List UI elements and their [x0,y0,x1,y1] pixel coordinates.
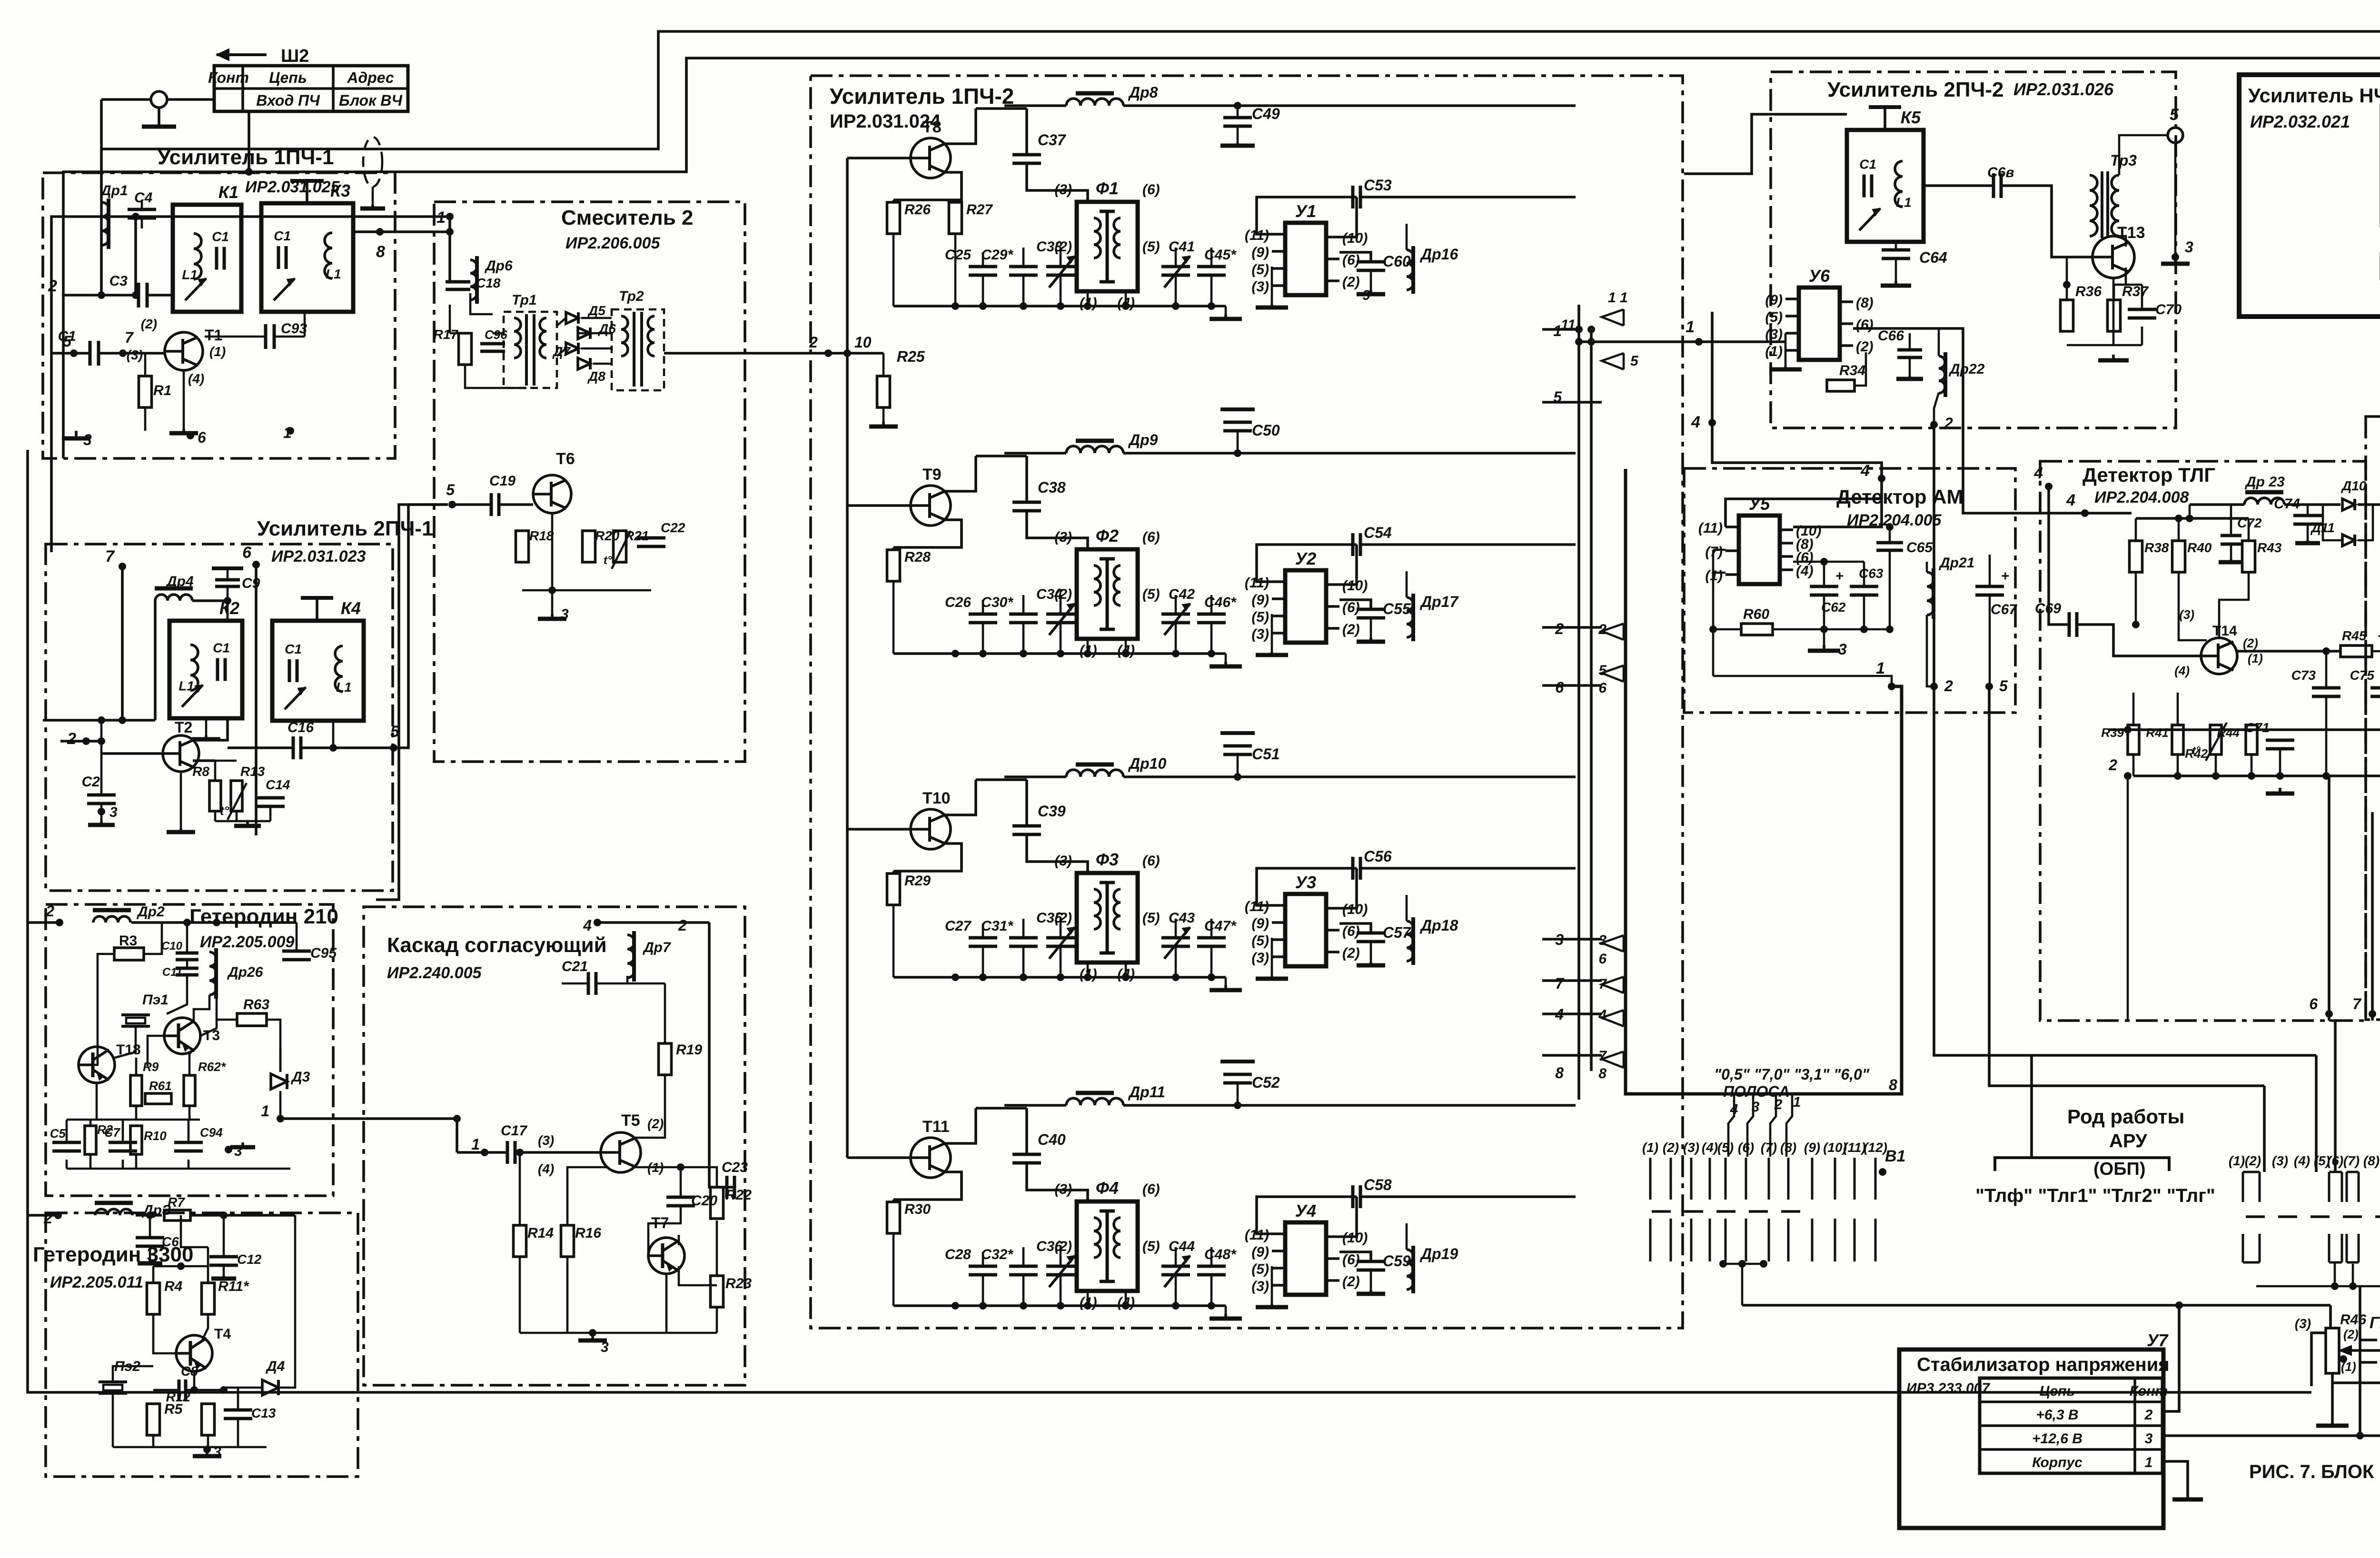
svg-text:R34: R34 [1839,363,1865,378]
svg-text:У6: У6 [1809,266,1830,286]
svg-text:Т9: Т9 [922,466,942,484]
svg-text:(4): (4) [538,1161,554,1176]
svg-text:3: 3 [601,1340,609,1355]
svg-text:C25: C25 [945,247,972,263]
svg-text:C65: C65 [1906,540,1933,556]
svg-text:L1: L1 [336,680,352,695]
svg-text:R46: R46 [2340,1312,2366,1328]
svg-text:C1: C1 [285,642,302,656]
svg-text:Др6: Др6 [484,258,513,274]
svg-text:ИР2.032.021: ИР2.032.021 [2250,112,2350,131]
svg-text:t°: t° [220,804,229,818]
svg-text:C95: C95 [310,945,337,961]
svg-text:(6): (6) [1142,1181,1160,1197]
svg-text:C56: C56 [1364,848,1392,865]
svg-text:3: 3 [2145,1431,2153,1447]
svg-text:(9): (9) [1251,592,1269,608]
svg-text:Др 23: Др 23 [2244,474,2285,490]
svg-text:R22: R22 [725,1187,752,1203]
svg-text:+: + [2378,629,2380,643]
svg-text:Смеситель 2: Смеситель 2 [561,206,693,229]
svg-text:C57: C57 [1383,924,1412,941]
svg-text:C7: C7 [104,1125,121,1140]
svg-text:Ф4: Ф4 [1096,1178,1119,1198]
svg-text:3: 3 [2185,238,2193,256]
svg-text:6: 6 [1555,679,1564,696]
svg-text:Др1: Др1 [99,183,128,198]
svg-text:C67: C67 [1991,602,2017,617]
svg-text:C16: C16 [288,720,314,735]
svg-text:Тр2: Тр2 [619,288,644,304]
svg-text:R30: R30 [904,1201,931,1217]
svg-text:Д5: Д5 [587,303,605,318]
svg-text:2: 2 [43,1210,52,1227]
svg-text:C1: C1 [212,229,229,244]
svg-text:(11): (11) [1698,520,1723,536]
svg-text:(3): (3) [538,1133,554,1148]
svg-text:C94: C94 [200,1125,223,1140]
svg-text:(6): (6) [1142,529,1160,545]
svg-text:4: 4 [1730,1102,1738,1117]
svg-text:Т8: Т8 [922,118,942,136]
svg-text:Ф2: Ф2 [1096,526,1119,546]
svg-text:РИС. 7. БЛОК ПЧ. Схема электри: РИС. 7. БЛОК ПЧ. Схема электрическая при… [2249,1461,2380,1482]
svg-text:8: 8 [1889,1076,1897,1093]
svg-text:2: 2 [1774,1097,1783,1112]
svg-text:8: 8 [1598,1066,1606,1082]
svg-text:C58: C58 [1364,1176,1392,1193]
svg-text:C14: C14 [266,777,290,792]
svg-text:R17: R17 [434,327,459,342]
svg-text:В1: В1 [1885,1147,1905,1165]
svg-text:(6): (6) [1856,317,1874,333]
svg-text:C64: C64 [1919,249,1947,266]
svg-text:1: 1 [471,1136,480,1153]
svg-text:Ф1: Ф1 [1096,179,1119,198]
svg-text:Адрес: Адрес [347,69,394,86]
svg-text:R13: R13 [240,764,265,779]
svg-text:R45: R45 [2342,628,2367,643]
svg-text:(2): (2) [1342,622,1360,637]
svg-text:Род работы: Род работы [2067,1105,2184,1128]
svg-text:Др19: Др19 [1419,1245,1458,1262]
svg-text:C47*: C47* [1204,918,1237,934]
svg-text:Корпус: Корпус [2032,1455,2082,1470]
svg-text:7: 7 [105,547,115,566]
svg-text:6: 6 [198,429,206,446]
svg-text:(9): (9) [1804,1140,1820,1155]
svg-text:C9: C9 [242,576,260,591]
svg-text:(5): (5) [1251,1261,1269,1277]
svg-text:9: 9 [1362,288,1370,303]
svg-text:Ш2: Ш2 [281,46,309,66]
svg-text:C69: C69 [2035,601,2061,616]
svg-text:(5): (5) [1142,1239,1160,1254]
svg-text:2: 2 [2144,1407,2153,1423]
svg-text:+: + [2001,568,2010,584]
svg-text:L1: L1 [1896,195,1912,210]
svg-text:(3): (3) [2179,607,2194,622]
svg-text:Др9: Др9 [1128,431,1158,448]
svg-text:(5): (5) [1251,933,1269,949]
svg-text:Др4: Др4 [165,574,194,589]
svg-text:(1): (1) [1765,344,1783,359]
svg-text:2: 2 [2108,756,2117,774]
svg-text:К4: К4 [341,598,361,618]
svg-text:(5): (5) [1142,586,1160,602]
svg-text:Конт: Конт [208,69,249,86]
svg-text:4: 4 [1691,413,1700,431]
svg-text:Др22: Др22 [1948,361,1985,377]
svg-text:R11*: R11* [218,1279,249,1294]
svg-text:C5: C5 [50,1126,66,1141]
svg-text:У5: У5 [1749,494,1770,514]
svg-text:C6в: C6в [1987,165,2014,180]
svg-text:Стабилизатор напряжения: Стабилизатор напряжения [1917,1354,2170,1375]
svg-text:t°: t° [2192,744,2201,757]
svg-text:(4): (4) [2174,664,2190,678]
svg-text:7: 7 [1598,976,1607,992]
svg-text:R40: R40 [2187,540,2212,555]
svg-text:(5): (5) [1251,609,1269,625]
svg-text:1: 1 [1686,318,1695,336]
svg-text:Т7: Т7 [651,1214,669,1231]
svg-text:Блок ВЧ: Блок ВЧ [339,92,403,109]
svg-text:C46*: C46* [1204,595,1237,610]
svg-text:(6): (6) [1142,182,1160,198]
svg-text:Т5: Т5 [621,1111,640,1130]
svg-text:C30*: C30* [981,595,1013,610]
svg-text:C75: C75 [2350,668,2375,683]
svg-text:Др7: Др7 [642,940,671,955]
svg-text:Др10: Др10 [1128,755,1166,772]
svg-text:2: 2 [1944,415,1953,432]
svg-text:R44: R44 [2217,725,2240,740]
svg-text:У1: У1 [1295,201,1316,221]
svg-text:Тр3: Тр3 [2110,152,2137,169]
svg-text:L1: L1 [182,268,198,282]
svg-text:8: 8 [1555,1064,1564,1082]
svg-text:C50: C50 [1252,422,1280,439]
svg-text:C72: C72 [2237,516,2262,530]
svg-text:C70: C70 [2155,302,2182,318]
svg-text:R37: R37 [2122,284,2149,299]
svg-text:Д4: Д4 [265,1359,285,1374]
svg-text:R41: R41 [2146,725,2169,740]
svg-text:4: 4 [2033,464,2043,482]
svg-text:Усилитель 1ПЧ-1: Усилитель 1ПЧ-1 [158,146,334,169]
svg-text:C32*: C32* [981,1247,1013,1262]
svg-text:C40: C40 [1038,1131,1066,1148]
svg-text:ИР2.240.005: ИР2.240.005 [387,964,482,982]
svg-text:(8): (8) [2363,1153,2380,1168]
svg-text:C6: C6 [162,1234,179,1249]
svg-text:Тр1: Тр1 [512,292,537,308]
svg-text:Др26: Др26 [227,964,263,980]
svg-text:t°: t° [604,554,612,567]
svg-text:R25: R25 [897,348,925,365]
svg-text:Т13: Т13 [2117,224,2145,242]
svg-text:(3): (3) [2272,1153,2288,1168]
svg-text:C44: C44 [1169,1239,1195,1254]
svg-text:1: 1 [261,1102,269,1120]
svg-text:C12: C12 [237,1252,262,1267]
svg-text:C41: C41 [1169,239,1195,255]
svg-text:2: 2 [67,730,76,748]
svg-text:R3: R3 [119,933,137,949]
svg-text:Др8: Др8 [1128,84,1158,101]
svg-text:Детектор ТЛГ: Детектор ТЛГ [2082,464,2215,486]
svg-text:(5): (5) [1142,239,1160,255]
svg-text:2: 2 [1598,622,1606,637]
svg-text:C39: C39 [1038,803,1066,820]
svg-text:1: 1 [1793,1094,1801,1110]
svg-text:(6): (6) [1142,853,1160,869]
svg-text:У3: У3 [1295,873,1316,892]
svg-text:Т10: Т10 [922,789,951,807]
svg-text:3: 3 [109,804,118,820]
svg-text:5: 5 [2170,106,2179,124]
svg-text:С18: С18 [476,276,501,290]
svg-text:C22: C22 [661,520,685,535]
svg-text:R28: R28 [904,549,931,565]
svg-text:(9): (9) [1765,292,1783,308]
svg-text:(8): (8) [1856,295,1874,311]
svg-text:C4: C4 [134,190,153,206]
svg-text:(3): (3) [1251,279,1269,295]
svg-text:(3): (3) [1251,950,1269,966]
svg-text:Пэ1: Пэ1 [142,992,169,1008]
svg-text:R23: R23 [725,1276,752,1291]
svg-text:Др21: Др21 [1938,555,1974,571]
svg-text:R36: R36 [2075,284,2102,299]
svg-text:Др18: Др18 [1419,917,1458,934]
svg-text:C29*: C29* [981,247,1013,263]
svg-text:1: 1 [1876,659,1885,677]
svg-text:У2: У2 [1295,549,1316,568]
svg-text:C54: C54 [1364,524,1392,541]
svg-text:6: 6 [1598,951,1606,967]
svg-text:(5): (5) [1765,309,1783,325]
svg-text:R26: R26 [904,202,931,218]
svg-text:(3): (3) [1054,853,1072,869]
svg-text:Др11: Др11 [1128,1083,1165,1101]
svg-text:5: 5 [1630,353,1639,369]
svg-text:C73: C73 [2291,668,2316,683]
svg-text:(2): (2) [1054,910,1072,926]
svg-text:Д3: Д3 [290,1069,310,1085]
svg-text:C20: C20 [691,1193,717,1209]
svg-text:8: 8 [376,243,385,261]
svg-text:(2): (2) [1342,1274,1360,1290]
svg-text:Т1: Т1 [205,327,222,344]
svg-text:C51: C51 [1252,745,1280,763]
svg-text:C59: C59 [1383,1252,1411,1270]
svg-text:(3): (3) [127,347,143,362]
svg-text:C63: C63 [1859,566,1884,581]
svg-text:C23: C23 [722,1160,748,1175]
svg-text:C1: C1 [1859,157,1876,172]
svg-text:(2): (2) [1342,274,1360,290]
svg-text:Детектор АМ: Детектор АМ [1836,486,1963,508]
svg-text:ИР2.031.023: ИР2.031.023 [271,547,366,566]
svg-text:5: 5 [446,481,455,498]
svg-text:Д10: Д10 [2341,478,2367,493]
svg-text:У7: У7 [2147,1330,2169,1350]
svg-text:(4): (4) [1796,563,1814,579]
svg-text:(5): (5) [1251,262,1269,278]
svg-text:C45*: C45* [1204,247,1237,263]
svg-text:R9: R9 [143,1060,159,1074]
svg-text:(6): (6) [1738,1140,1754,1155]
svg-text:R39: R39 [2101,725,2124,740]
svg-text:(1): (1) [2248,651,2263,665]
svg-text:(3): (3) [1683,1140,1699,1155]
svg-text:"0,5" "7,0" "3,1" "6,0": "0,5" "7,0" "3,1" "6,0" [1714,1066,1870,1083]
svg-text:C19: C19 [489,473,516,489]
svg-text:7: 7 [1555,975,1565,992]
svg-text:К1: К1 [218,182,238,202]
svg-text:R7: R7 [168,1195,185,1210]
svg-text:R14: R14 [527,1225,554,1241]
svg-text:R4: R4 [164,1279,183,1294]
svg-text:(2): (2) [2243,636,2258,650]
svg-text:Гетеродин 210: Гетеродин 210 [189,905,338,928]
svg-text:3: 3 [1838,641,1847,658]
svg-text:Ф3: Ф3 [1096,850,1119,869]
svg-text:(1): (1) [2341,1360,2356,1374]
svg-text:Д8: Д8 [587,369,605,384]
svg-text:+6,3 В: +6,3 В [2036,1407,2078,1423]
svg-text:(4): (4) [2294,1153,2310,1168]
svg-text:Т18: Т18 [116,1042,141,1058]
svg-text:К5: К5 [1901,108,1921,127]
svg-text:АРУ: АРУ [2109,1131,2148,1151]
svg-text:(3): (3) [1054,1181,1072,1197]
svg-text:(2): (2) [1054,586,1072,602]
svg-text:(5): (5) [1717,1140,1734,1155]
svg-text:C31*: C31* [981,918,1013,934]
svg-text:C10: C10 [161,940,183,953]
svg-text:C55: C55 [1383,600,1411,617]
svg-text:(4): (4) [1702,1140,1718,1155]
svg-text:C52: C52 [1252,1074,1280,1091]
svg-text:(1): (1) [2229,1153,2245,1168]
svg-text:(9): (9) [1251,1244,1269,1260]
svg-text:Усилитель 2ПЧ-1: Усилитель 2ПЧ-1 [257,517,434,540]
svg-text:R38: R38 [2144,540,2169,555]
svg-text:C8: C8 [181,1364,198,1379]
svg-text:C3: C3 [109,273,128,289]
svg-text:(2): (2) [1663,1140,1679,1155]
svg-text:C66: C66 [1878,328,1904,344]
svg-text:R8: R8 [192,764,209,779]
svg-text:ИР3.233.007: ИР3.233.007 [1906,1380,1990,1396]
svg-text:2: 2 [45,903,54,920]
svg-text:Т11: Т11 [922,1118,950,1136]
svg-text:(4): (4) [188,371,204,386]
svg-text:Др2: Др2 [136,904,165,920]
svg-text:+: + [1835,568,1844,584]
svg-text:(ОБП): (ОБП) [2093,1159,2146,1179]
svg-text:(9): (9) [1251,245,1269,260]
svg-text:(2): (2) [1856,339,1874,355]
svg-text:2: 2 [48,277,57,295]
svg-text:7: 7 [125,329,134,346]
svg-text:4: 4 [2066,491,2075,509]
svg-text:(2): (2) [2245,1153,2261,1168]
svg-text:Т4: Т4 [214,1326,231,1342]
svg-text:R19: R19 [676,1042,702,1058]
svg-text:(2): (2) [1342,945,1360,961]
svg-text:2: 2 [1944,677,1953,695]
svg-text:4: 4 [583,917,592,934]
svg-text:1 1: 1 1 [1608,290,1628,306]
svg-text:(3): (3) [1765,327,1783,342]
svg-text:C60: C60 [1383,253,1411,270]
svg-text:R18: R18 [529,528,554,543]
svg-text:L1: L1 [178,679,194,694]
svg-text:R10: R10 [144,1129,167,1143]
svg-text:ИР2.031.026: ИР2.031.026 [2013,79,2114,99]
svg-text:К3: К3 [330,181,350,200]
svg-text:R43: R43 [2257,540,2282,555]
svg-text:(2): (2) [1054,1239,1072,1254]
svg-text:2: 2 [678,917,687,934]
svg-text:(2): (2) [2343,1327,2359,1341]
svg-text:R16: R16 [575,1225,601,1241]
svg-text:(2): (2) [647,1116,664,1131]
svg-text:Усилитель НЧ: Усилитель НЧ [2248,84,2380,107]
svg-text:C13: C13 [251,1406,276,1420]
svg-text:C49: C49 [1252,105,1280,122]
svg-text:(3): (3) [1251,1279,1269,1294]
svg-text:Каскад согласующий: Каскад согласующий [387,933,607,957]
svg-text:4: 4 [1860,462,1870,480]
svg-text:6: 6 [1598,680,1606,696]
svg-text:R27: R27 [966,202,993,218]
svg-text:2: 2 [1555,620,1564,637]
svg-text:C28: C28 [945,1247,971,1262]
svg-text:ИР2.206.005: ИР2.206.005 [565,234,660,252]
svg-text:(8): (8) [1780,1140,1796,1155]
svg-text:C93: C93 [281,321,307,337]
svg-text:C48*: C48* [1204,1247,1237,1262]
svg-text:C27: C27 [945,918,972,934]
svg-text:R60: R60 [1743,606,1769,622]
svg-text:C1: C1 [213,641,230,655]
svg-text:(7): (7) [2343,1153,2360,1168]
svg-text:6: 6 [242,544,252,562]
svg-text:R29: R29 [904,873,931,889]
svg-text:(11): (11) [1843,1140,1866,1155]
svg-text:К2: К2 [219,598,239,618]
svg-text:7: 7 [2352,995,2362,1012]
svg-text:Цепь: Цепь [269,69,307,86]
svg-text:(7): (7) [1761,1140,1777,1155]
svg-text:R1: R1 [153,383,171,398]
svg-text:(2): (2) [141,317,157,331]
svg-text:(3): (3) [2295,1316,2311,1331]
svg-text:C26: C26 [945,595,971,610]
svg-text:(12): (12) [1864,1140,1887,1155]
svg-text:C53: C53 [1364,177,1392,194]
svg-text:C71: C71 [2245,720,2270,735]
svg-text:(1): (1) [209,344,226,359]
svg-text:C11: C11 [162,966,182,979]
svg-text:(2): (2) [1054,239,1072,255]
svg-text:Усилитель 2ПЧ-2: Усилитель 2ПЧ-2 [1827,78,2004,101]
